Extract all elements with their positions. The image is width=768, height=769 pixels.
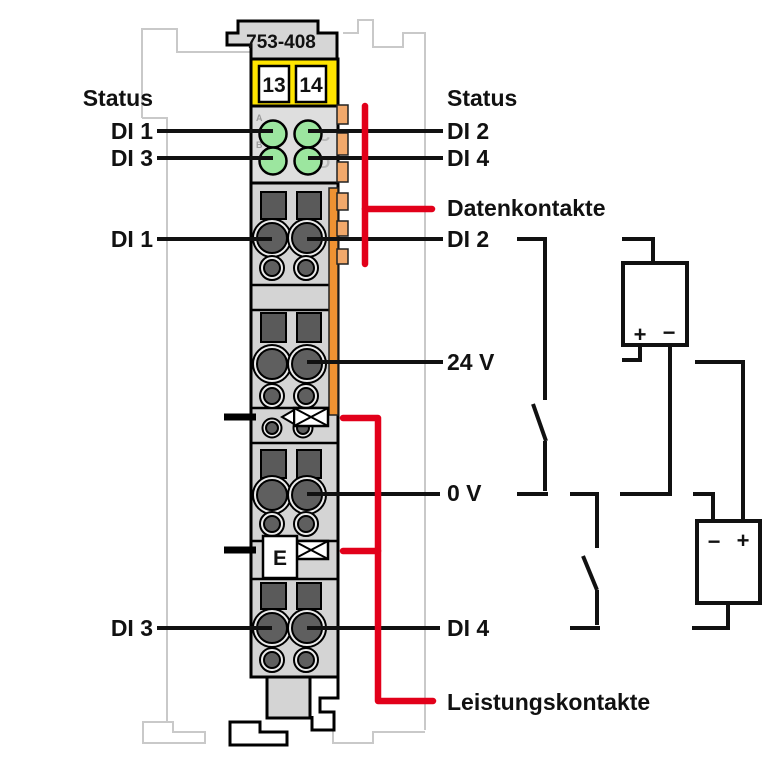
wiring-diagram: + − − + 753-408 13 14 A B C D — [0, 0, 768, 769]
wire-24v-to-psu2-plus — [695, 362, 743, 521]
psu1-minus-label: − — [663, 320, 676, 345]
terminal-14-label: 14 — [299, 74, 323, 97]
label-status-left: Status — [83, 85, 153, 111]
data-contact-tab — [337, 249, 348, 264]
label-di1-led: DI 1 — [111, 118, 153, 144]
led-di4 — [295, 148, 322, 175]
label-di3-terminal: DI 3 — [111, 615, 153, 641]
terminal-13-label: 13 — [262, 74, 285, 97]
adjacent-outline-hook-bottom-left — [143, 722, 205, 743]
switch2-blade — [583, 556, 597, 590]
adjacent-outline-top-right — [343, 20, 425, 730]
data-contact-tab — [337, 162, 348, 182]
marking-label: E — [273, 547, 287, 570]
led-di1 — [260, 121, 287, 148]
label-di4-terminal: DI 4 — [447, 615, 489, 641]
foot-hook-left — [230, 722, 287, 745]
data-contact-tab — [337, 133, 348, 155]
adjacent-outline-hook-bottom-right — [318, 730, 425, 743]
clamp-opening — [261, 450, 286, 478]
leistungskontakte-line — [343, 418, 433, 701]
label-di2-led: DI 2 — [447, 118, 489, 144]
data-contact-tab — [337, 193, 348, 210]
clamp-opening — [297, 583, 321, 609]
label-0v: 0 V — [447, 480, 482, 506]
psu2-plus-label: + — [737, 528, 750, 553]
wire-di2-to-switch1 — [517, 239, 545, 400]
terminal-0v-left — [253, 476, 291, 514]
psu1-plus-wire — [622, 346, 640, 360]
clamp-opening — [297, 450, 321, 478]
label-24v: 24 V — [447, 349, 495, 375]
psu1-top-wire — [622, 239, 653, 263]
label-status-right: Status — [447, 85, 517, 111]
clamp-opening — [297, 192, 321, 219]
module-body: 753-408 13 14 A B C D — [224, 21, 348, 677]
data-contact-tab — [337, 105, 348, 124]
clamp-opening — [297, 313, 321, 342]
psu2-minus-wire — [693, 494, 713, 521]
wire-0v-to-switch2 — [570, 494, 597, 548]
psu2-minus-label: − — [708, 529, 721, 554]
psu-polarity-labels: + − − + — [634, 320, 750, 554]
external-circuit — [517, 239, 760, 628]
psu2-bottom-wire — [692, 603, 728, 628]
label-di2-terminal: DI 2 — [447, 226, 489, 252]
label-di1-terminal: DI 1 — [111, 226, 153, 252]
labels-right: Status DI 2 DI 4 Datenkontakte DI 2 24 V… — [447, 85, 650, 715]
psu1-plus-label: + — [634, 322, 647, 347]
switch1-blade — [533, 404, 546, 441]
psu1-minus-wire — [620, 346, 670, 494]
led-di3 — [260, 148, 287, 175]
clamp-opening — [261, 583, 286, 609]
label-di4-led: DI 4 — [447, 145, 489, 171]
label-leistungskontakte: Leistungskontakte — [447, 689, 650, 715]
psu2-box — [697, 521, 760, 603]
red-callout-lines — [343, 106, 433, 701]
foot-hook-right — [312, 677, 338, 730]
led-di2 — [295, 121, 322, 148]
diagram-canvas: + − − + 753-408 13 14 A B C D — [0, 0, 768, 769]
data-contact-tab — [337, 221, 348, 236]
label-di3-led: DI 3 — [111, 145, 153, 171]
labels-left: Status DI 1 DI 3 DI 1 DI 3 — [83, 85, 153, 641]
led-letter-a: A — [256, 113, 263, 123]
label-datenkontakte: Datenkontakte — [447, 195, 605, 221]
part-number-label: 753-408 — [246, 32, 316, 53]
terminal-24v-left — [253, 345, 291, 383]
clamp-opening — [261, 192, 286, 219]
clamp-opening — [261, 313, 286, 342]
